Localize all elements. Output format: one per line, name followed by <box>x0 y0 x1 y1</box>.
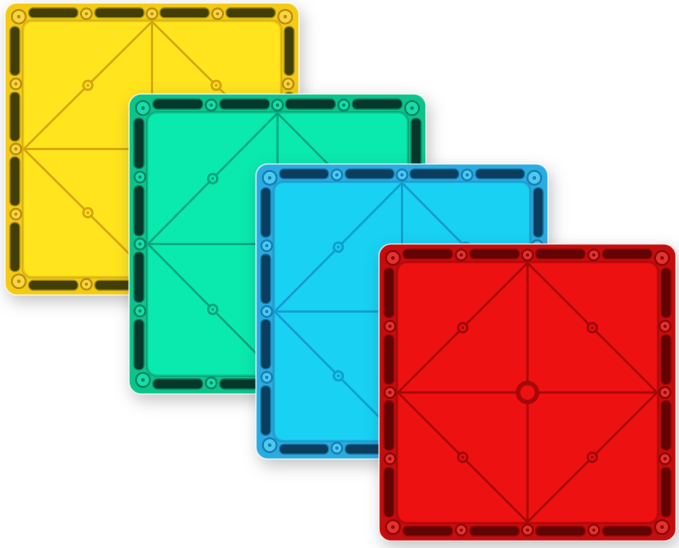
tile-red <box>378 243 677 542</box>
face-rivet <box>334 243 343 252</box>
face-rivet <box>212 81 221 90</box>
face-rivet <box>83 208 92 217</box>
face-rivet <box>458 453 467 462</box>
face-rivet <box>208 174 217 183</box>
face-rivet <box>588 453 597 462</box>
product-image <box>0 0 679 548</box>
face-rivet <box>83 81 92 90</box>
face-rivet <box>208 305 217 314</box>
face-rivet <box>458 323 467 332</box>
face-rivet <box>334 371 343 380</box>
face-rivet <box>588 323 597 332</box>
tile-graphic <box>378 243 677 542</box>
